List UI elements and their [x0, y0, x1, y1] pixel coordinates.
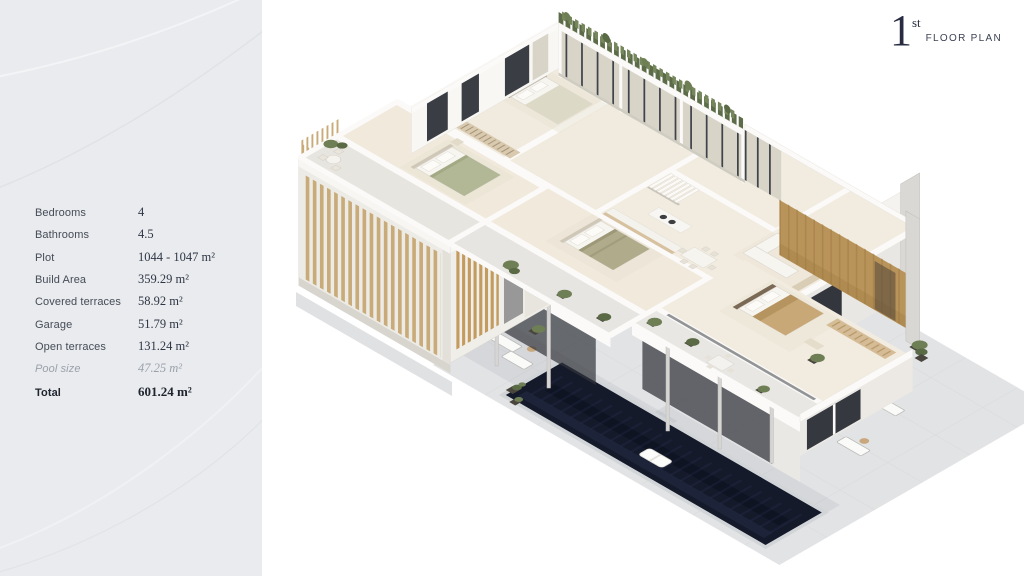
floor-plan-render [0, 0, 1024, 576]
floor-ordinal-suffix: st [912, 15, 921, 31]
page-title: 1 st FLOOR PLAN [890, 12, 1002, 50]
floor-plan-label: FLOOR PLAN [926, 33, 1002, 44]
stone-pillar [906, 211, 920, 349]
brochure-page: { "header": { "floor_number": "1", "floo… [0, 0, 1024, 576]
floor-number: 1 [890, 12, 912, 50]
